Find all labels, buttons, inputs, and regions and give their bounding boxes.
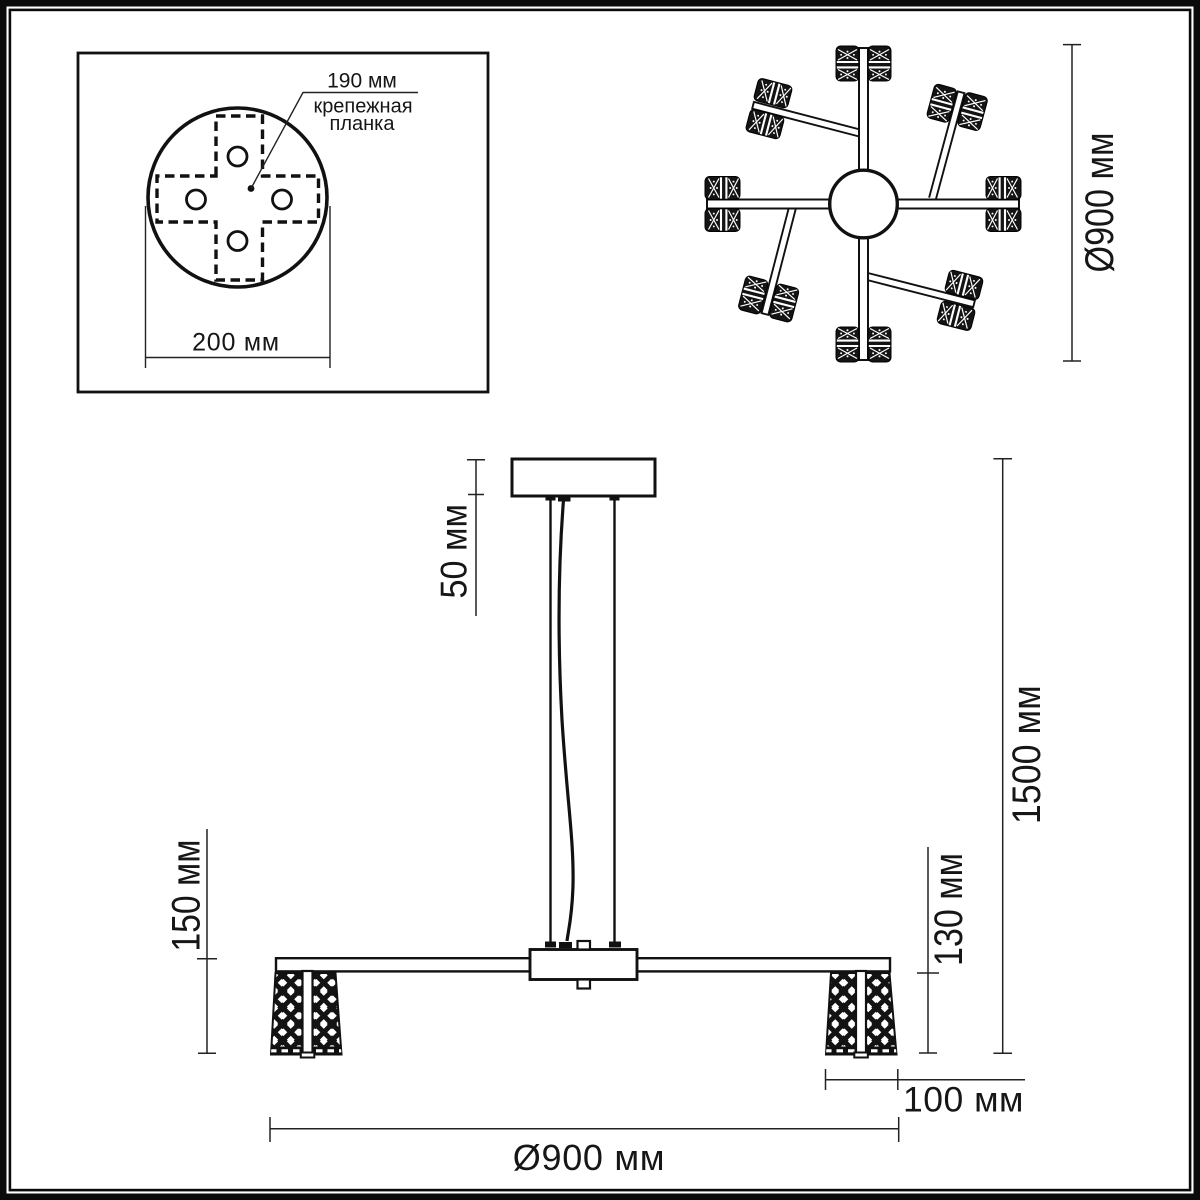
svg-text:200 мм: 200 мм <box>192 329 280 357</box>
svg-text:100 мм: 100 мм <box>903 1080 1024 1120</box>
svg-text:150 мм: 150 мм <box>164 840 208 952</box>
svg-text:190 мм: 190 мм <box>327 70 397 93</box>
svg-text:130 мм: 130 мм <box>925 853 970 966</box>
svg-text:Ø900 мм: Ø900 мм <box>1076 133 1121 273</box>
svg-text:50 мм: 50 мм <box>433 504 475 599</box>
svg-text:планка: планка <box>330 113 396 135</box>
svg-text:Ø900 мм: Ø900 мм <box>513 1137 665 1178</box>
svg-text:1500 мм: 1500 мм <box>1005 685 1049 824</box>
